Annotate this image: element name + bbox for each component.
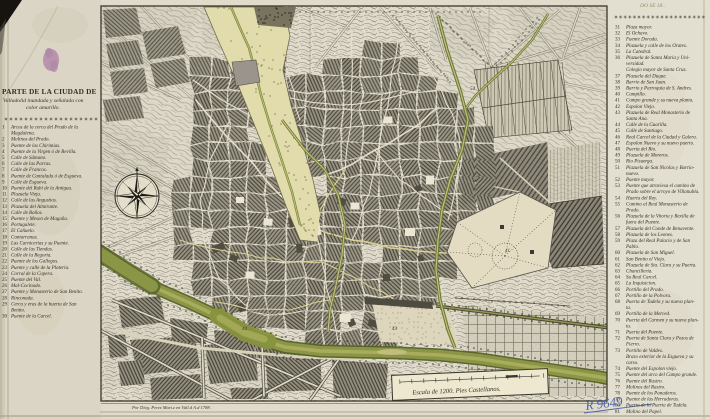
svg-text:19: 19 bbox=[2, 241, 8, 246]
svg-text:Campo grande y su nueva planta: Campo grande y su nueva planta. bbox=[626, 99, 694, 104]
svg-text:39: 39 bbox=[615, 87, 621, 92]
svg-text:57: 57 bbox=[615, 227, 621, 232]
svg-text:Barrio de San Juan.: Barrio de San Juan. bbox=[626, 80, 666, 85]
svg-text:Puente y Monasterio de San Ben: Puente y Monasterio de San Benito. bbox=[10, 290, 83, 295]
svg-text:47: 47 bbox=[615, 141, 621, 146]
svg-text:Benito.: Benito. bbox=[11, 309, 25, 314]
svg-text:35: 35 bbox=[615, 50, 621, 55]
svg-text:La Inquisicion.: La Inquisicion. bbox=[625, 282, 656, 287]
svg-text:69: 69 bbox=[615, 312, 621, 317]
svg-text:55: 55 bbox=[615, 202, 621, 207]
svg-text:Plazuela Vieja.: Plazuela Vieja. bbox=[10, 193, 41, 198]
svg-text:Portugalete.: Portugalete. bbox=[10, 223, 36, 228]
svg-text:73: 73 bbox=[615, 349, 621, 354]
svg-text:Puente del Val.: Puente del Val. bbox=[10, 278, 41, 283]
svg-text:54: 54 bbox=[470, 87, 476, 92]
svg-text:21: 21 bbox=[2, 254, 8, 259]
svg-text:Huerta del Rey.: Huerta del Rey. bbox=[625, 196, 657, 201]
svg-text:Cerca y eras de la huerta de S: Cerca y eras de la huerta de San bbox=[11, 302, 77, 307]
svg-text:Chancilleria.: Chancilleria. bbox=[626, 270, 653, 275]
svg-text:40: 40 bbox=[615, 93, 621, 98]
svg-text:10: 10 bbox=[2, 187, 8, 192]
svg-text:Puerta del Carmen y su nueva p: Puerta del Carmen y su nueva plan- bbox=[625, 318, 699, 323]
svg-text:15: 15 bbox=[2, 217, 8, 222]
svg-text:Calle de Sámano.: Calle de Sámano. bbox=[11, 156, 46, 161]
svg-text:67: 67 bbox=[615, 294, 621, 299]
svg-text:76: 76 bbox=[615, 379, 621, 384]
svg-text:Puente del Espolon viejo.: Puente del Espolon viejo. bbox=[625, 367, 677, 372]
svg-text:Corral de la Copera.: Corral de la Copera. bbox=[11, 272, 53, 277]
svg-text:Calle de la Guarilla.: Calle de la Guarilla. bbox=[626, 123, 668, 128]
svg-text:74: 74 bbox=[615, 367, 621, 372]
svg-text:Puente que atraviesa el camino: Puente que atraviesa el camino de bbox=[625, 184, 696, 189]
svg-text:11: 11 bbox=[2, 193, 7, 198]
svg-text:16: 16 bbox=[2, 223, 8, 228]
svg-text:Las Carnicerias y su Puente.: Las Carnicerias y su Puente. bbox=[10, 241, 69, 246]
svg-text:Fuente Dorada.: Fuente Dorada. bbox=[625, 38, 658, 43]
svg-text:Calle de Santiago.: Calle de Santiago. bbox=[626, 129, 663, 134]
svg-text:49: 49 bbox=[615, 154, 621, 159]
svg-text:60: 60 bbox=[615, 251, 621, 256]
svg-text:Fierro.: Fierro. bbox=[625, 343, 640, 348]
svg-text:Puente de las Chirimias.: Puente de las Chirimias. bbox=[10, 144, 60, 149]
svg-text:Puente de las Herradoras.: Puente de las Herradoras. bbox=[625, 398, 679, 403]
svg-text:Barrio y Parroquia de S. Andre: Barrio y Parroquia de S. Andres. bbox=[626, 87, 692, 92]
svg-text:Portillo del Prado.: Portillo del Prado. bbox=[625, 288, 664, 293]
svg-text:El Cañuelo.: El Cañuelo. bbox=[10, 229, 35, 234]
svg-text:42: 42 bbox=[615, 105, 621, 110]
svg-text:DO SE 18..: DO SE 18.. bbox=[639, 3, 665, 9]
svg-text:Prado.: Prado. bbox=[625, 209, 640, 214]
svg-text:Calle de Francos.: Calle de Francos. bbox=[11, 168, 47, 173]
svg-text:62: 62 bbox=[615, 263, 621, 268]
svg-text:nuevo.: nuevo. bbox=[626, 172, 639, 177]
svg-text:Puerta de Tudela y su nueva pl: Puerta de Tudela y su nueva plan- bbox=[625, 300, 695, 305]
svg-text:Mal-Cocinado.: Mal-Cocinado. bbox=[10, 284, 41, 289]
svg-text:Puente y Meson de Magaña.: Puente y Meson de Magaña. bbox=[10, 217, 68, 222]
svg-text:Plazuela y calle de los Orates: Plazuela y calle de los Orates. bbox=[625, 44, 687, 49]
svg-text:41: 41 bbox=[505, 249, 510, 254]
svg-text:66: 66 bbox=[615, 288, 621, 293]
svg-text:Puente de la Virgen ó de Revil: Puente de la Virgen ó de Revilla. bbox=[10, 150, 77, 155]
svg-text:Por Dieg. Perez Mart.z en Vall: Por Dieg. Perez Mart.z en Vall.d A.d 178… bbox=[131, 405, 211, 410]
svg-text:Espolon Viejo.: Espolon Viejo. bbox=[625, 105, 655, 110]
svg-text:14: 14 bbox=[2, 211, 8, 216]
svg-text:La Catedral.: La Catedral. bbox=[625, 50, 652, 55]
svg-text:36: 36 bbox=[615, 56, 621, 61]
svg-text:22: 22 bbox=[2, 260, 8, 265]
svg-text:Puente del Rastro.: Puente del Rastro. bbox=[625, 379, 663, 384]
svg-text:color amarillo.: color amarillo. bbox=[26, 105, 60, 111]
svg-text:Portillo de Valdes.: Portillo de Valdes. bbox=[625, 349, 663, 354]
svg-text:26: 26 bbox=[2, 284, 8, 289]
svg-text:ta.: ta. bbox=[626, 306, 631, 311]
svg-text:25: 25 bbox=[2, 278, 8, 283]
svg-text:18: 18 bbox=[2, 235, 8, 240]
svg-text:Puente de los Panaderos.: Puente de los Panaderos. bbox=[625, 392, 677, 397]
svg-text:San Benito el Viejo.: San Benito el Viejo. bbox=[626, 257, 665, 262]
svg-text:30: 30 bbox=[2, 315, 8, 320]
svg-text:64: 64 bbox=[615, 276, 621, 281]
svg-text:Arcos de la cerca del Prado de: Arcos de la cerca del Prado de la bbox=[10, 126, 78, 131]
svg-text:Portillo de la Merced.: Portillo de la Merced. bbox=[625, 312, 670, 317]
svg-text:75: 75 bbox=[615, 373, 621, 378]
svg-text:Puerta de la Puerta de Tudela.: Puerta de la Puerta de Tudela. bbox=[625, 404, 688, 409]
svg-text:Plazuela de Real Monasterio de: Plazuela de Real Monasterio de bbox=[625, 111, 691, 116]
svg-text:Brazo exterior de la Esgueva y: Brazo exterior de la Esgueva y su bbox=[626, 355, 694, 360]
svg-text:Puerta de Santa Clara y Pozos: Puerta de Santa Clara y Pozos de bbox=[625, 337, 695, 342]
svg-text:Espolon Nuevo y su nuevo puert: Espolon Nuevo y su nuevo puerto. bbox=[625, 141, 694, 146]
svg-text:Puente de la Carcel.: Puente de la Carcel. bbox=[10, 315, 52, 320]
svg-text:Plazuela de la Vitoria y Rexil: Plazuela de la Vitoria y Rexilla de bbox=[625, 215, 695, 220]
svg-text:El Ochavo.: El Ochavo. bbox=[625, 32, 649, 37]
svg-text:Puerta del Rio.: Puerta del Rio. bbox=[625, 148, 656, 153]
svg-text:43: 43 bbox=[392, 327, 398, 332]
svg-text:Su Real Carcel.: Su Real Carcel. bbox=[626, 276, 657, 281]
svg-text:13: 13 bbox=[2, 205, 8, 210]
svg-text:Molino del Papel.: Molino del Papel. bbox=[625, 410, 662, 415]
svg-text:81: 81 bbox=[615, 410, 621, 415]
svg-text:70: 70 bbox=[615, 318, 621, 323]
svg-text:78: 78 bbox=[615, 392, 621, 397]
svg-text:63: 63 bbox=[615, 270, 621, 275]
svg-text:Plaza del Real Palacio y de Sa: Plaza del Real Palacio y de San bbox=[625, 239, 691, 244]
svg-text:29: 29 bbox=[2, 302, 8, 307]
svg-text:Rinconada.: Rinconada. bbox=[10, 296, 34, 301]
svg-text:58: 58 bbox=[615, 233, 621, 238]
svg-text:44: 44 bbox=[615, 123, 621, 128]
svg-text:Magdalena.: Magdalena. bbox=[10, 132, 35, 137]
svg-text:ta.: ta. bbox=[626, 324, 631, 329]
svg-text:Puente de Cantalada ó de Esgue: Puente de Cantalada ó de Esgueva. bbox=[10, 174, 82, 179]
svg-text:80: 80 bbox=[615, 404, 621, 409]
svg-text:68: 68 bbox=[615, 300, 621, 305]
svg-text:45: 45 bbox=[615, 129, 621, 134]
svg-text:43: 43 bbox=[615, 111, 621, 116]
svg-text:Plazuela del Duque.: Plazuela del Duque. bbox=[625, 74, 667, 79]
svg-text:51: 51 bbox=[615, 166, 621, 171]
svg-text:34: 34 bbox=[615, 44, 621, 49]
svg-text:52: 52 bbox=[615, 178, 621, 183]
svg-text:Valladolid inundada y señalada: Valladolid inundada y señalada con bbox=[3, 98, 84, 104]
svg-text:65: 65 bbox=[615, 282, 621, 287]
svg-text:31: 31 bbox=[615, 26, 621, 31]
svg-text:Plazuela de Moreros.: Plazuela de Moreros. bbox=[625, 154, 669, 159]
svg-text:curso.: curso. bbox=[626, 361, 638, 366]
svg-text:53: 53 bbox=[615, 184, 621, 189]
svg-text:Plazuela de San Nicolas y Barr: Plazuela de San Nicolas y Barrio- bbox=[625, 166, 695, 171]
svg-text:Puerta del Puente.: Puerta del Puente. bbox=[625, 331, 663, 336]
svg-text:17: 17 bbox=[2, 229, 8, 234]
svg-text:20: 20 bbox=[2, 248, 8, 253]
svg-text:56: 56 bbox=[615, 215, 621, 220]
svg-text:Cantarranas.: Cantarranas. bbox=[11, 235, 38, 240]
svg-text:37: 37 bbox=[615, 74, 621, 79]
svg-text:Molinos del Prado.: Molinos del Prado. bbox=[10, 138, 50, 143]
svg-text:Calle de las Angustias.: Calle de las Angustias. bbox=[11, 199, 57, 204]
svg-text:32: 32 bbox=[615, 32, 621, 37]
svg-text:Plazuela del Almirante.: Plazuela del Almirante. bbox=[10, 205, 58, 210]
svg-text:PARTE DE LA CIUDAD DE: PARTE DE LA CIUDAD DE bbox=[2, 87, 97, 96]
svg-text:66: 66 bbox=[188, 339, 194, 344]
svg-text:Puente del arco del Campo gran: Puente del arco del Campo grande. bbox=[625, 373, 697, 378]
svg-text:Calle de Baños.: Calle de Baños. bbox=[11, 211, 43, 216]
svg-text:79: 79 bbox=[615, 398, 621, 403]
svg-text:Puente mayor.: Puente mayor. bbox=[625, 178, 655, 183]
svg-text:24: 24 bbox=[2, 272, 8, 277]
svg-text:Portillo de la Polvora.: Portillo de la Polvora. bbox=[625, 294, 671, 299]
svg-text:Puente del Rubi de la Antigua.: Puente del Rubi de la Antigua. bbox=[10, 187, 72, 192]
svg-text:48: 48 bbox=[615, 148, 621, 153]
svg-text:Plazuela del Conde de Benavent: Plazuela del Conde de Benavente. bbox=[625, 227, 694, 232]
svg-text:Rio Pisuerga.: Rio Pisuerga. bbox=[625, 160, 653, 165]
svg-text:77: 77 bbox=[615, 385, 621, 390]
svg-text:Calle de Esgueva.: Calle de Esgueva. bbox=[11, 180, 47, 185]
svg-text:50: 50 bbox=[615, 160, 621, 165]
svg-text:Santa Ana.: Santa Ana. bbox=[626, 117, 648, 122]
svg-text:Plazuela de San Miguel.: Plazuela de San Miguel. bbox=[625, 251, 675, 256]
svg-text:72: 72 bbox=[615, 337, 621, 342]
svg-text:Calle de las Parras.: Calle de las Parras. bbox=[11, 162, 51, 167]
svg-text:Plaza mayor.: Plaza mayor. bbox=[625, 26, 652, 31]
svg-text:Puente y calle de la Plateria.: Puente y calle de la Plateria. bbox=[10, 266, 69, 271]
svg-text:Plazuela de Santa Maria y Uni-: Plazuela de Santa Maria y Uni- bbox=[625, 56, 690, 61]
svg-text:44: 44 bbox=[242, 327, 248, 332]
svg-text:41: 41 bbox=[615, 99, 621, 104]
svg-text:38: 38 bbox=[615, 80, 621, 85]
svg-text:Campillo.: Campillo. bbox=[626, 93, 646, 98]
svg-text:versidad.: versidad. bbox=[626, 62, 644, 67]
svg-text:Calle de la Regoria.: Calle de la Regoria. bbox=[11, 254, 52, 259]
svg-text:71: 71 bbox=[615, 331, 621, 336]
svg-text:Prado sobre el arroyo de Villa: Prado sobre el arroyo de Villanubla. bbox=[625, 190, 699, 195]
svg-text:12: 12 bbox=[2, 199, 8, 204]
svg-text:Molinos del Rastro.: Molinos del Rastro. bbox=[625, 385, 665, 390]
svg-text:Puente de los Gallegos.: Puente de los Gallegos. bbox=[10, 260, 59, 265]
svg-text:fuera del Puente.: fuera del Puente. bbox=[626, 221, 660, 226]
svg-text:46: 46 bbox=[615, 135, 621, 140]
svg-text:Colegio mayor de Santa Cruz.: Colegio mayor de Santa Cruz. bbox=[626, 68, 687, 73]
svg-text:28: 28 bbox=[2, 296, 8, 301]
svg-text:33: 33 bbox=[615, 38, 621, 43]
svg-text:61: 61 bbox=[615, 257, 621, 262]
svg-text:Real Carcel de la Ciudad y Gal: Real Carcel de la Ciudad y Galera. bbox=[625, 135, 697, 140]
svg-text:Camino al Real Monasterio de: Camino al Real Monasterio de bbox=[626, 202, 688, 207]
svg-text:Calle de las Tiendas.: Calle de las Tiendas. bbox=[11, 248, 53, 253]
svg-text:27: 27 bbox=[2, 290, 8, 295]
svg-text:31: 31 bbox=[330, 233, 335, 238]
svg-text:23: 23 bbox=[2, 266, 8, 271]
svg-text:Plazuela de los Leones.: Plazuela de los Leones. bbox=[625, 233, 673, 238]
svg-text:59: 59 bbox=[615, 239, 621, 244]
svg-text:54: 54 bbox=[615, 196, 621, 201]
svg-text:Plazuela de Sta. Clara y su Pu: Plazuela de Sta. Clara y su Puerta. bbox=[625, 263, 697, 268]
svg-text:Pablo.: Pablo. bbox=[625, 245, 639, 250]
